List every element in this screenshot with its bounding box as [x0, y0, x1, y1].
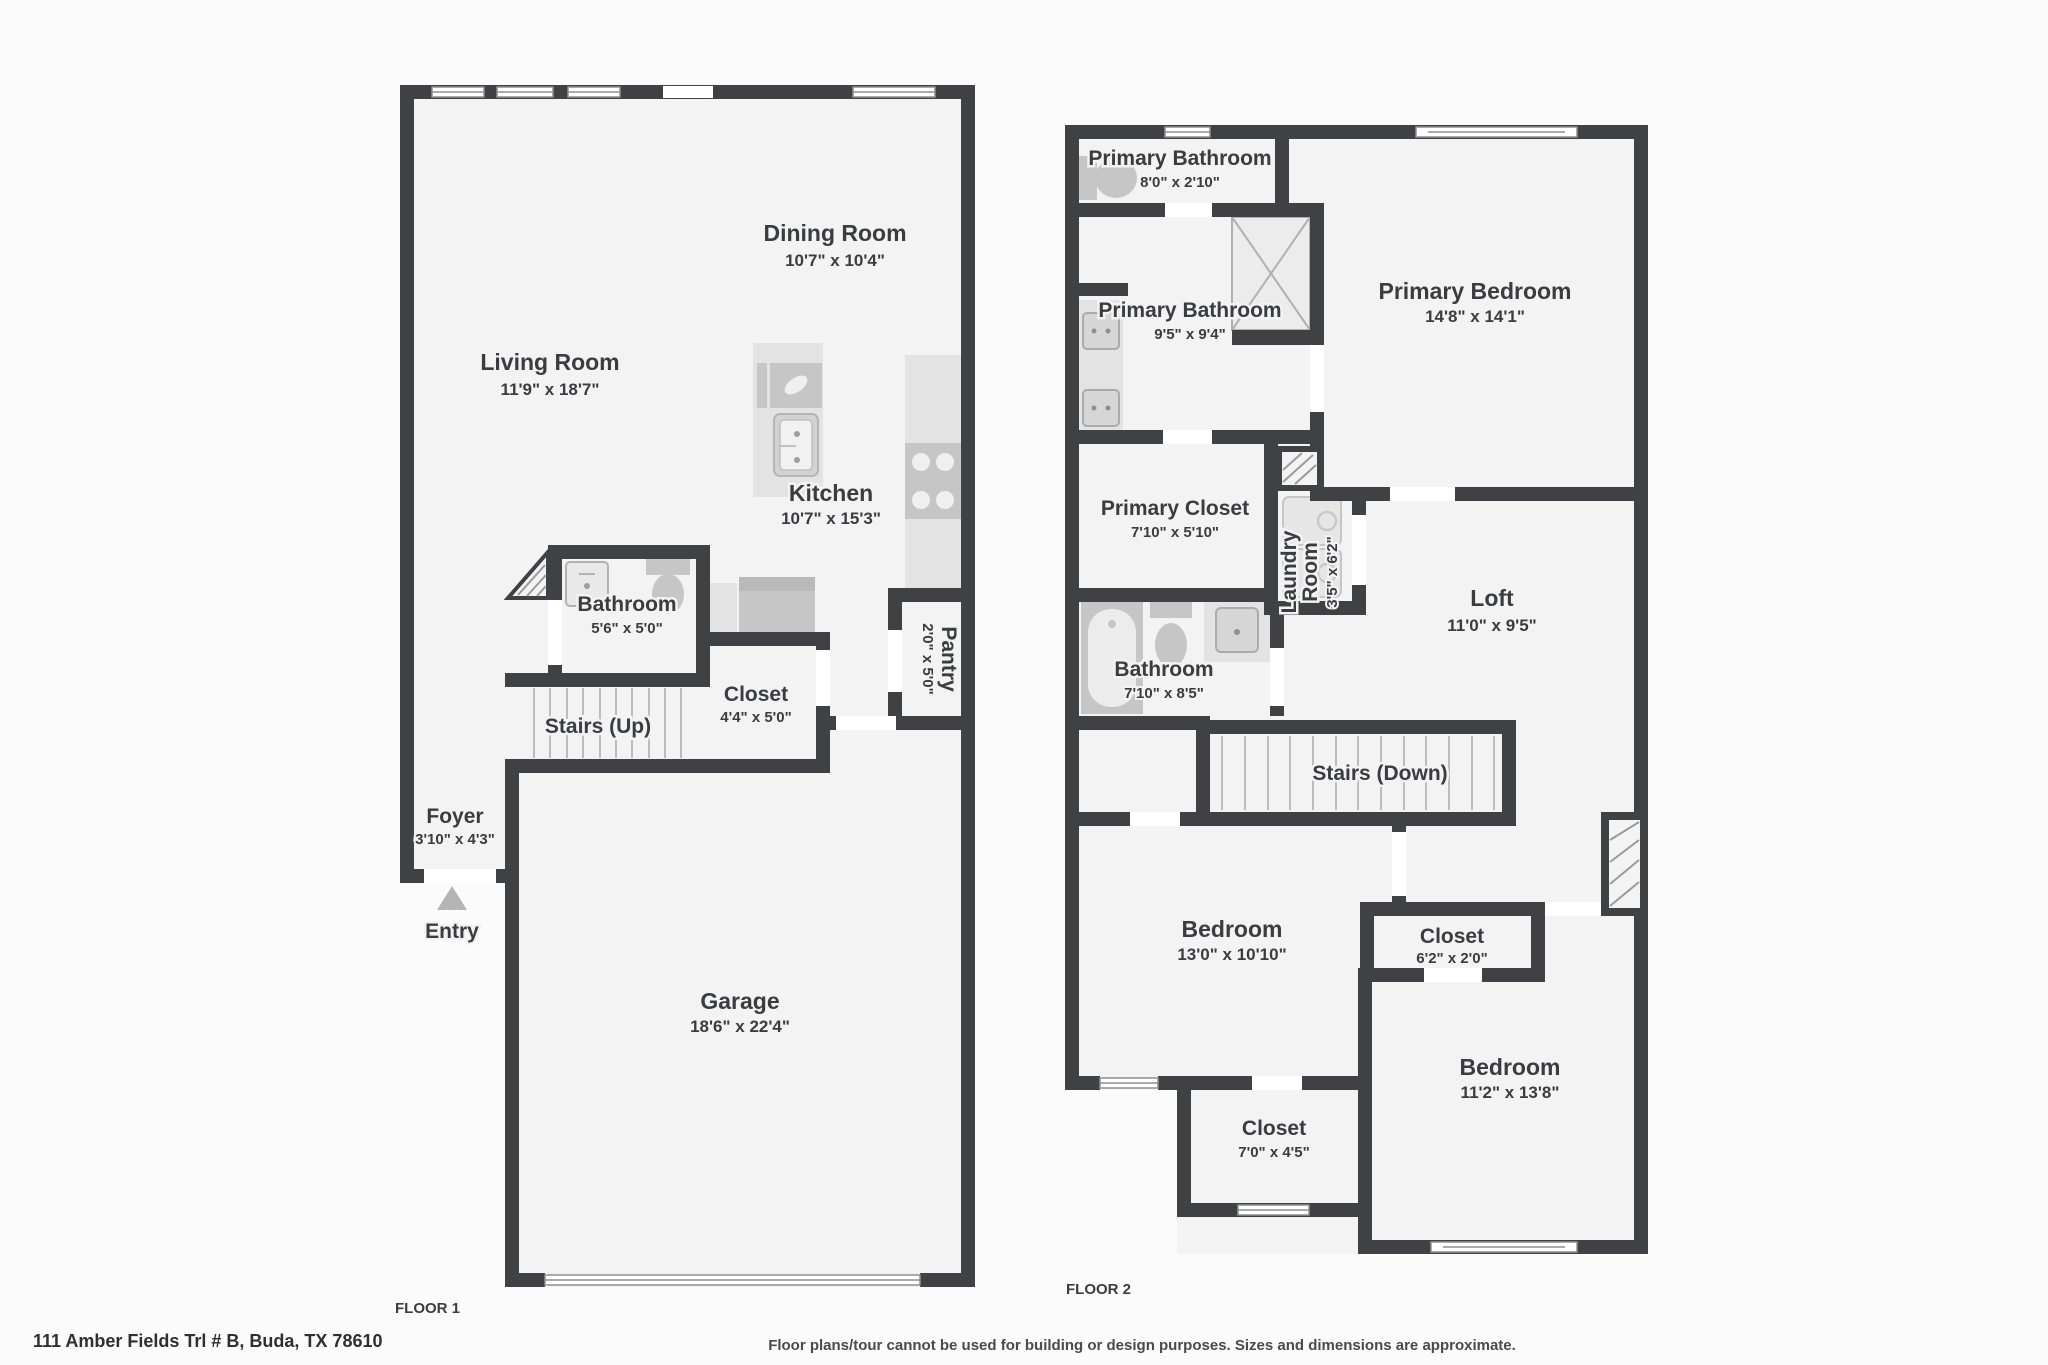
- primary-bathroom-label: Primary Bathroom: [1098, 299, 1281, 322]
- floor2-plan: Primary Bathroom 8'0" x 2'10" Primary Ba…: [1065, 125, 1648, 1265]
- svg-text:Laundry: Laundry: [1278, 530, 1301, 613]
- bathroom-label: Bathroom: [577, 593, 676, 616]
- window: [663, 86, 713, 98]
- kitchen-counter: [905, 355, 961, 590]
- entry-label: Entry: [425, 920, 479, 943]
- svg-text:2'0" x 5'0": 2'0" x 5'0": [919, 623, 936, 694]
- primary-bathroom-dims: 9'5" x 9'4": [1154, 326, 1225, 343]
- bathroom-sink-icon: [1083, 390, 1119, 426]
- primary-bathroom-upper-dims: 8'0" x 2'10": [1140, 174, 1220, 191]
- window: [1416, 127, 1577, 137]
- window: [1431, 1242, 1577, 1252]
- svg-text:Room: Room: [1299, 542, 1322, 602]
- bathroom2-label: Bathroom: [1114, 658, 1213, 681]
- dining-room-dims: 10'7" x 10'4": [785, 251, 885, 270]
- closet-lower-label: Closet: [1242, 1117, 1306, 1140]
- bathroom-sink-icon: [1204, 602, 1270, 662]
- entry-door-opening: [424, 869, 496, 883]
- garage-dims: 18'6" x 22'4": [690, 1017, 790, 1036]
- window: [432, 87, 484, 97]
- disclaimer-text: Floor plans/tour cannot be used for buil…: [768, 1337, 1516, 1354]
- door-opening: [1163, 430, 1212, 444]
- floorplan-page: Dining Room 10'7" x 10'4" Living Room 11…: [0, 0, 2048, 1365]
- svg-text:3'5" x 6'2": 3'5" x 6'2": [1324, 536, 1341, 607]
- floor1-tag: FLOOR 1: [395, 1300, 460, 1317]
- bathroom2-dims: 7'10" x 8'5": [1124, 685, 1204, 702]
- bedroom-right-label: Bedroom: [1460, 1054, 1561, 1080]
- loft-label: Loft: [1470, 585, 1514, 611]
- window: [1100, 1078, 1158, 1088]
- kitchen-dims: 10'7" x 15'3": [781, 509, 881, 528]
- washer-dryer-units: [700, 577, 815, 633]
- door-opening: [1390, 487, 1455, 501]
- pantry-label: Pantry 2'0" x 5'0": [919, 623, 960, 694]
- primary-bedroom-label: Primary Bedroom: [1378, 278, 1571, 304]
- door-opening: [888, 630, 902, 692]
- door-opening: [1352, 515, 1366, 585]
- dining-room-label: Dining Room: [763, 220, 906, 246]
- door-opening: [1165, 203, 1212, 217]
- svg-text:Pantry: Pantry: [937, 626, 960, 692]
- floor2-notch: [1065, 1090, 1177, 1265]
- door-opening: [1424, 968, 1482, 982]
- floor2-tag: FLOOR 2: [1066, 1281, 1131, 1298]
- stairs-down-label: Stairs (Down): [1312, 762, 1447, 785]
- door-opening: [1310, 345, 1324, 412]
- foyer-label: Foyer: [426, 805, 483, 828]
- address-text: 111 Amber Fields Trl # B, Buda, TX 78610: [33, 1331, 383, 1351]
- window: [568, 87, 620, 97]
- kitchen-sink-icon: [774, 414, 818, 476]
- closet-lower-dims: 7'0" x 4'5": [1238, 1144, 1309, 1161]
- primary-closet-dims: 7'10" x 5'10": [1131, 524, 1219, 541]
- closet-small-label: Closet: [1420, 925, 1484, 948]
- door-opening: [1392, 832, 1406, 896]
- window: [1165, 127, 1210, 137]
- garage-label: Garage: [700, 988, 779, 1014]
- wall-void-hatch: [1275, 446, 1324, 491]
- bedroom-left-label: Bedroom: [1182, 916, 1283, 942]
- primary-bedroom-dims: 14'8" x 14'1": [1425, 307, 1525, 326]
- kitchen-island: [753, 343, 823, 497]
- living-room-dims: 11'9" x 18'7": [501, 380, 600, 399]
- floor2-slab-lower: [1177, 1090, 1648, 1254]
- window: [853, 87, 935, 97]
- living-room-label: Living Room: [480, 349, 619, 375]
- bathroom-dims: 5'6" x 5'0": [591, 620, 662, 637]
- door-opening: [1545, 902, 1601, 916]
- door-opening: [836, 716, 896, 730]
- foyer-dims: 3'10" x 4'3": [415, 831, 495, 848]
- floor1-notch: [400, 883, 505, 1287]
- door-opening: [816, 650, 830, 706]
- primary-closet-label: Primary Closet: [1101, 497, 1249, 520]
- door-opening: [1130, 812, 1180, 826]
- refrigerator-icon: [757, 363, 822, 408]
- garage-door-opening: [545, 1275, 920, 1285]
- door-opening: [548, 600, 562, 665]
- bedroom-left-dims: 13'0" x 10'10": [1177, 945, 1286, 964]
- kitchen-label: Kitchen: [789, 480, 873, 506]
- closet-small-dims: 6'2" x 2'0": [1416, 950, 1487, 967]
- door-opening: [1270, 648, 1284, 706]
- loft-dims: 11'0" x 9'5": [1447, 616, 1536, 635]
- stove-icon: [905, 443, 961, 519]
- bedroom-right-dims: 11'2" x 13'8": [1461, 1083, 1560, 1102]
- primary-bathroom-upper-label: Primary Bathroom: [1088, 147, 1271, 170]
- floor1-plan: Dining Room 10'7" x 10'4" Living Room 11…: [400, 85, 975, 1287]
- stairs-up-label: Stairs (Up): [545, 715, 651, 738]
- wall-void-hatch: [1601, 812, 1648, 916]
- closet-dims: 4'4" x 5'0": [720, 709, 791, 726]
- window: [497, 87, 553, 97]
- door-opening: [1252, 1076, 1302, 1090]
- floorplan-image: Dining Room 10'7" x 10'4" Living Room 11…: [0, 0, 2048, 1365]
- window: [1238, 1205, 1309, 1215]
- laundry-room-label: Laundry Room 3'5" x 6'2": [1278, 530, 1341, 613]
- closet-label: Closet: [724, 683, 788, 706]
